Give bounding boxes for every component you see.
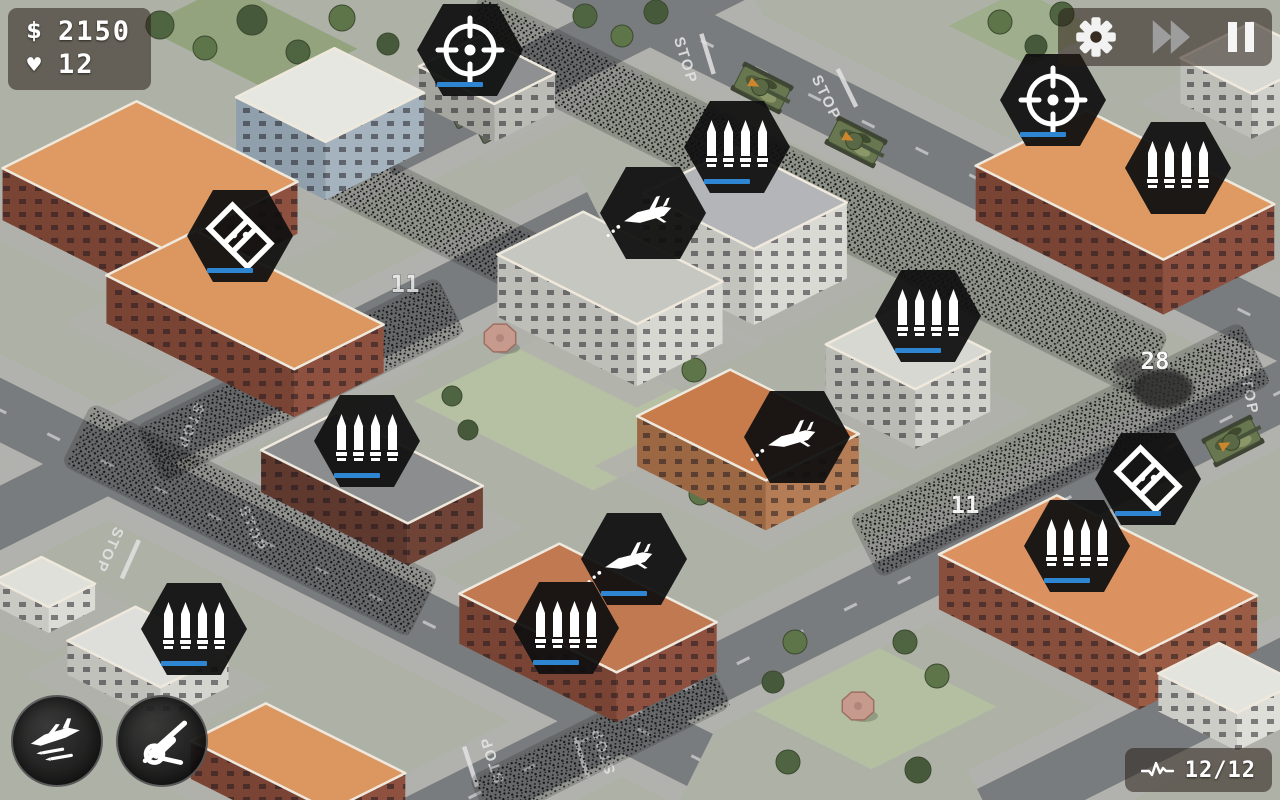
tower-upgrade-bar <box>161 661 207 666</box>
tree <box>1025 35 1047 57</box>
wave-pulse-icon <box>1141 759 1175 781</box>
tower-upgrade-bar <box>1020 132 1066 137</box>
money-value: 2150 <box>58 16 131 47</box>
tower-upgrade-bar <box>207 268 253 273</box>
resources-panel: $ 2150 ♥ 12 <box>8 8 151 90</box>
lives-value: 12 <box>58 49 95 80</box>
game-screen: STOPSTOPSTOPSTOPSTOPSTOPSTOPSTOP112811 $… <box>0 0 1280 800</box>
tower-upgrade-bar <box>601 591 647 596</box>
gear-icon <box>1074 15 1118 59</box>
tree <box>377 33 399 55</box>
tree <box>988 10 1012 34</box>
tree <box>776 750 800 774</box>
tree <box>762 671 784 693</box>
tree <box>193 36 217 60</box>
controls-panel <box>1058 8 1272 66</box>
fast-forward-button[interactable] <box>1151 19 1193 55</box>
enemy-count-label: 28 <box>1141 347 1170 375</box>
tower-upgrade-bar <box>533 660 579 665</box>
airstrike-jet-icon <box>27 711 87 771</box>
tower-upgrade-bar <box>334 473 380 478</box>
enemy-count-label: 11 <box>391 270 420 298</box>
tower-upgrade-bar <box>1044 578 1090 583</box>
game-map[interactable]: STOPSTOPSTOPSTOPSTOPSTOPSTOPSTOP112811 <box>0 0 1280 800</box>
artillery-ability-button[interactable] <box>116 695 208 787</box>
tree <box>925 664 949 688</box>
wave-panel: 12/12 <box>1125 748 1272 792</box>
tower-upgrade-bar <box>437 82 483 87</box>
pause-button[interactable] <box>1226 19 1256 55</box>
tree <box>458 420 478 440</box>
tree <box>644 0 668 24</box>
tree <box>286 40 310 64</box>
fast-forward-icon <box>1151 19 1193 55</box>
tower-upgrade-bar <box>895 348 941 353</box>
money-icon: $ <box>22 19 46 44</box>
tree <box>893 630 917 654</box>
tree <box>783 630 807 654</box>
tower-upgrade-bar <box>704 179 750 184</box>
tree <box>905 757 931 783</box>
lives-row: ♥ 12 <box>22 49 131 80</box>
wave-counter: 12/12 <box>1185 758 1256 783</box>
tree <box>329 5 355 31</box>
enemy-count-label: 11 <box>951 491 980 519</box>
tree <box>442 386 462 406</box>
lives-icon: ♥ <box>22 54 46 76</box>
tree <box>237 5 267 35</box>
artillery-cannon-icon <box>132 711 192 771</box>
money-row: $ 2150 <box>22 16 131 47</box>
tree <box>611 25 633 47</box>
pause-icon <box>1226 19 1256 55</box>
airstrike-ability-button[interactable] <box>11 695 103 787</box>
tower-upgrade-bar <box>1115 511 1161 516</box>
settings-button[interactable] <box>1074 15 1118 59</box>
tree <box>573 4 597 28</box>
